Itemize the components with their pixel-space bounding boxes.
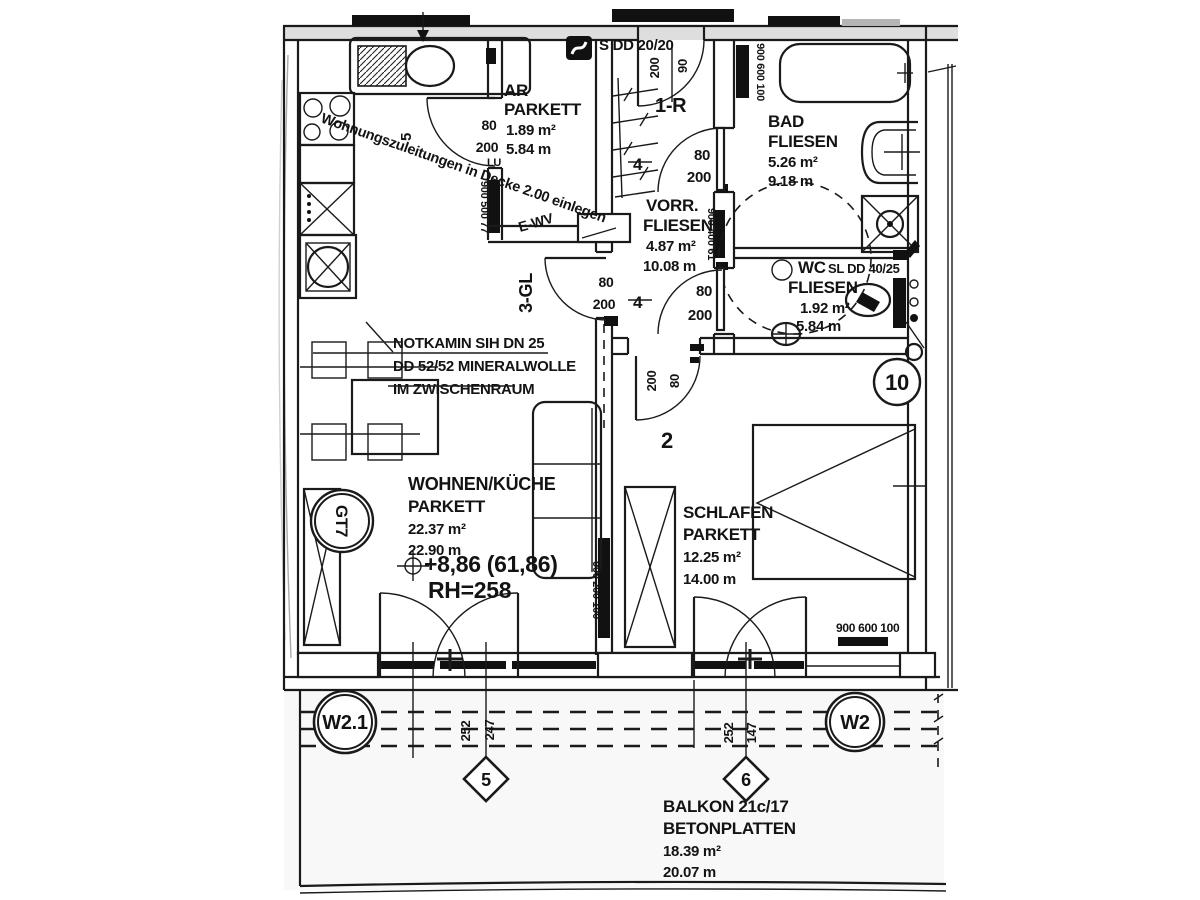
axis-5-label: 5 [481,770,491,790]
window-dim-ar: 900 500 77 [478,181,490,233]
room-schlafen-area: 12.25 m² [683,549,741,566]
door-schlafen-number: 2 [661,428,673,453]
room-vorraum-name: VORR. [646,196,698,215]
cabinet-crossed [300,183,354,235]
bed [753,425,926,579]
bathtub [780,44,910,102]
room-balkon-floor: BETONPLATTEN [663,819,796,838]
door-wohnen-width: 80 [599,274,614,290]
window-strip [754,661,804,669]
marker-unit-label: 10 [885,370,909,395]
sill-bar-schlafen [838,637,888,646]
room-ar-name: AR [504,81,528,100]
dim-252b: 252 [721,723,736,744]
marker-gt7: GT7 [311,490,373,552]
door-wc-width: 80 [696,283,712,300]
room-balkon-girth: 20.07 m [663,864,716,881]
room-vorraum-floor: FLIESEN [643,216,713,235]
window-strip [380,661,434,669]
drainer [358,46,406,86]
door-ar-height: 200 [476,139,499,155]
room-balkon-name: BALKON 21c/17 [663,797,789,816]
wall-post-right [900,653,935,677]
cistern [893,278,906,328]
window-bar-top-kitchen [352,15,470,26]
wall-post-mid [598,653,692,677]
wall-post-left [298,653,378,677]
door-schlafen: 200 80 2 [636,356,700,453]
room-label-ar: AR PARKETT 1.89 m² 5.84 m [504,81,582,158]
wardrobe-crossed [625,487,675,647]
washbasin [862,122,920,183]
window-bar-top-bad [768,16,840,26]
room-bad-girth: 9.18 m [768,173,813,190]
door-ar-width: 80 [482,117,497,133]
bedroom-furniture [625,425,926,647]
faucet [486,48,496,64]
door-bad-height: 200 [687,169,711,186]
door-wohnen-number: 3-GL [516,273,536,313]
door-entry-height: 200 [647,58,662,79]
room-wc-girth: 5.84 m [796,318,841,335]
door-bad-width: 80 [694,147,710,164]
door-wohnen: 80 200 3-GL [516,258,616,320]
marker-w21: W2.1 [314,691,376,753]
exterior-walls [283,9,958,690]
axis-6-label: 6 [741,770,751,790]
window-dim-wohnen-wall: 900 200 100 [590,561,602,619]
marker-w21-label: W2.1 [322,712,368,734]
window-dim-vorraum: 900 400 61 [705,208,717,260]
room-bad-area: 5.26 m² [768,154,818,171]
room-wc-floor: FLIESEN [788,278,858,297]
marker-w2: W2 [826,693,884,751]
room-ar-floor: PARKETT [504,100,582,119]
room-ar-area: 1.89 m² [506,122,556,139]
chair [312,342,346,378]
door-bad-number: 4 [633,155,643,174]
note-notkamin-3: IM ZWISCHENRAUM [393,381,534,398]
window-dim-schlafen: 900 600 100 [836,621,900,635]
note-sl-dd: SL DD 40/25 [828,261,900,276]
room-wohnen-name: WOHNEN/KÜCHE [408,474,556,494]
marker-w2-label: W2 [840,712,870,734]
sink-bowl [406,46,454,86]
door-wc-height: 200 [688,307,712,324]
room-balkon-area: 18.39 m² [663,843,721,860]
room-schlafen-floor: PARKETT [683,525,761,544]
window-bar-top-entry [612,9,734,22]
coat-rack [613,78,658,198]
door-wohnen-height: 200 [593,296,616,312]
room-bad-floor: FLIESEN [768,132,838,151]
chair [312,424,346,460]
door-schlafen-height: 200 [644,371,659,392]
room-schlafen-girth: 14.00 m [683,571,736,588]
dim-247: 247 [482,720,497,741]
room-vorraum-area: 4.87 m² [646,238,696,255]
note-notkamin-2: DD 52/52 MINERALWOLLE [393,358,576,375]
note-supply: Wohnungszuleitungen in Decke 2.00 einleg… [319,111,608,227]
base-cabinet [300,145,354,183]
window-dim-bad: 900 600 100 [754,43,766,101]
door-schlafen-width: 80 [667,374,682,388]
note-notkamin-1: NOTKAMIN SIH DN 25 [393,335,544,352]
room-bad-name: BAD [768,112,804,131]
drain-symbol [772,260,792,280]
room-wc-name: WC [798,258,826,277]
door-bad: 80 200 4 [628,128,724,192]
s-symbol-icon [566,36,592,60]
dim-147: 147 [744,723,759,744]
appliance-washer [300,235,356,298]
note-e-wv: E-WV [516,209,555,234]
room-wohnen-area: 22.37 m² [408,521,466,538]
door-wc-number: 4 [633,293,643,312]
floor-plan-page: 900 600 100 [0,0,1200,900]
room-vorraum-girth: 10.08 m [643,258,696,275]
room-ar-girth: 5.84 m [506,141,551,158]
marker-gt7-label: GT7 [332,505,351,537]
marker-unit-10: 10 [874,359,920,405]
room-schlafen-name: SCHLAFEN [683,503,773,522]
dim-252a: 252 [458,721,473,742]
door-entry-number: 1-R [655,95,687,117]
room-label-bad: BAD FLIESEN 5.26 m² 9.18 m [768,112,838,190]
note-room-height: RH=258 [428,577,512,603]
door-entry-width: 90 [675,59,690,73]
room-wc-area: 1.92 m² [800,300,850,317]
parapet-bar-bad [736,45,749,98]
note-s-dd: S DD 20/20 [599,37,674,54]
floor-plan-drawing: 900 600 100 [0,0,1200,900]
window-strip [512,661,596,669]
window-strip [694,661,746,669]
door-wc: 80 200 4 [628,268,724,334]
door-ar-lu: LU [487,157,501,169]
room-wohnen-floor: PARKETT [408,497,486,516]
room-label-vorraum: VORR. FLIESEN 4.87 m² 10.08 m [643,196,713,275]
room-label-schlafen: SCHLAFEN PARKETT 12.25 m² 14.00 m [683,503,773,588]
note-level: +8,86 (61,86) [424,551,558,577]
